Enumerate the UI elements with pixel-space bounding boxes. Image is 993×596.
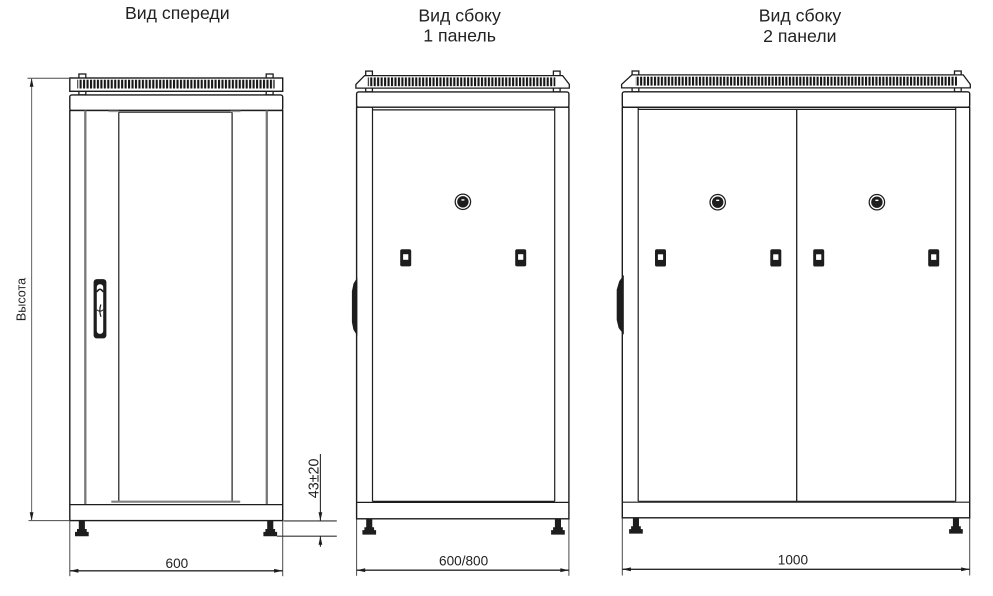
svg-text:600/800: 600/800 — [439, 553, 489, 568]
svg-text:Вид сбоку: Вид сбоку — [759, 6, 842, 26]
svg-text:Вид сбоку: Вид сбоку — [418, 5, 501, 25]
svg-text:Вид спереди: Вид спереди — [125, 3, 230, 23]
svg-text:Высота: Высота — [14, 278, 28, 321]
svg-text:1 панель: 1 панель — [423, 26, 496, 46]
svg-text:1000: 1000 — [778, 553, 809, 568]
svg-text:43±20: 43±20 — [306, 459, 322, 499]
svg-text:600: 600 — [166, 556, 189, 571]
svg-text:2 панели: 2 панели — [763, 26, 836, 46]
